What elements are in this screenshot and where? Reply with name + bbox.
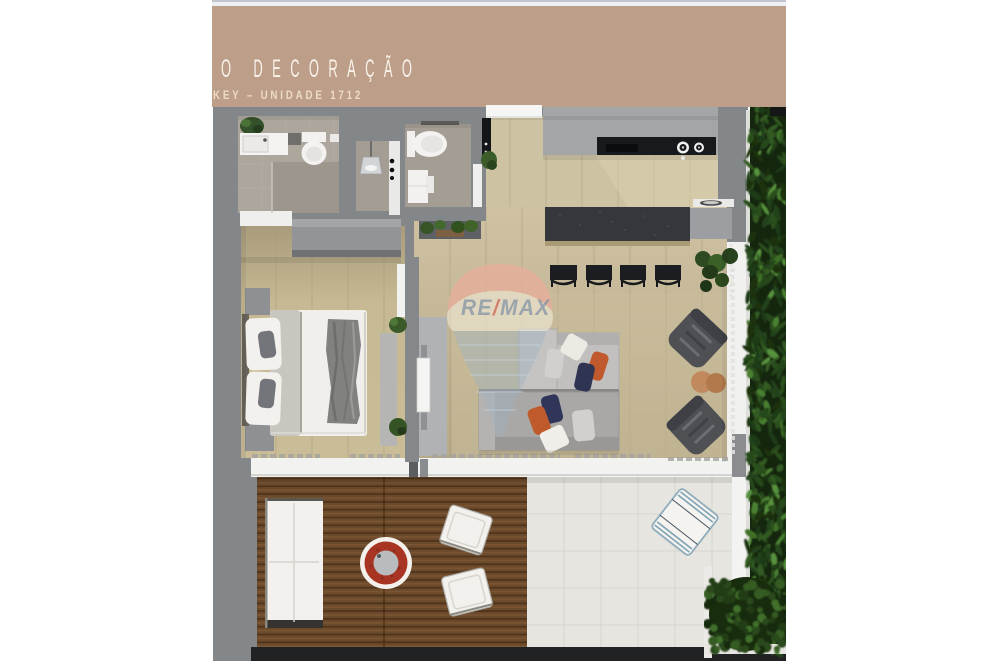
svg-text:RE/MAX: RE/MAX: [461, 296, 551, 321]
svg-text:O DECORAÇÃO: O DECORAÇÃO: [221, 53, 421, 83]
svg-text:KEY – UNIDADE 1712: KEY – UNIDADE 1712: [213, 89, 363, 102]
